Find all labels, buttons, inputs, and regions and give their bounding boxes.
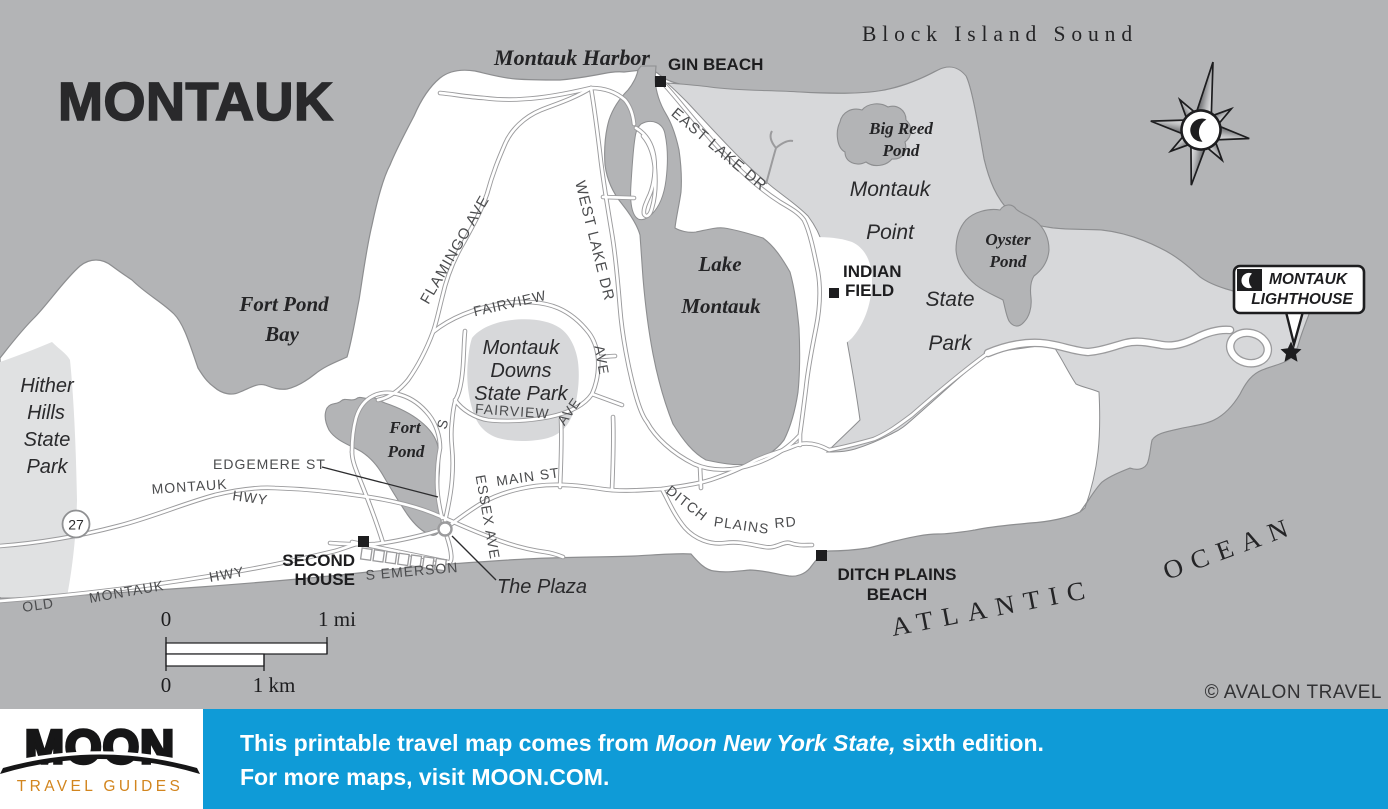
svg-text:MOON: MOON	[25, 720, 175, 773]
svg-text:The Plaza: The Plaza	[497, 576, 587, 598]
svg-text:Montauk: Montauk	[850, 178, 932, 201]
svg-text:FIELD: FIELD	[845, 281, 894, 300]
svg-text:SECOND: SECOND	[282, 551, 355, 570]
svg-text:BEACH: BEACH	[867, 585, 927, 604]
svg-text:Pond: Pond	[882, 141, 920, 160]
svg-text:0: 0	[161, 673, 172, 697]
svg-text:Montauk Harbor: Montauk Harbor	[493, 45, 650, 70]
svg-text:Block Island Sound: Block Island Sound	[862, 21, 1138, 46]
svg-text:HOUSE: HOUSE	[295, 570, 355, 589]
svg-text:Pond: Pond	[989, 252, 1027, 271]
svg-text:INDIAN: INDIAN	[843, 262, 902, 281]
svg-text:TRAVEL GUIDES: TRAVEL GUIDES	[17, 778, 184, 795]
svg-text:Oyster: Oyster	[985, 230, 1031, 249]
svg-text:Hither: Hither	[20, 375, 75, 397]
svg-text:MONTAUK: MONTAUK	[1269, 271, 1349, 288]
svg-text:© AVALON TRAVEL: © AVALON TRAVEL	[1205, 682, 1382, 703]
svg-text:Montauk: Montauk	[680, 294, 761, 318]
svg-text:1 mi: 1 mi	[318, 607, 356, 631]
svg-text:Fort Pond: Fort Pond	[238, 292, 329, 316]
svg-text:Big Reed: Big Reed	[868, 119, 933, 138]
svg-text:State: State	[24, 429, 71, 451]
svg-text:Montauk: Montauk	[483, 337, 561, 359]
svg-text:For more maps, visit MOON.COM.: For more maps, visit MOON.COM.	[240, 764, 609, 790]
svg-text:0: 0	[161, 607, 172, 631]
svg-text:RD: RD	[774, 513, 798, 531]
svg-text:EDGEMERE ST: EDGEMERE ST	[213, 456, 326, 472]
svg-text:Lake: Lake	[697, 252, 741, 276]
svg-text:Point: Point	[866, 221, 915, 244]
svg-text:Bay: Bay	[264, 322, 300, 346]
svg-text:1 km: 1 km	[253, 673, 296, 697]
svg-text:Fort: Fort	[388, 418, 421, 437]
svg-text:Downs: Downs	[490, 360, 551, 382]
svg-text:Park: Park	[26, 456, 68, 478]
svg-text:DITCH PLAINS: DITCH PLAINS	[838, 565, 957, 584]
svg-text:Park: Park	[928, 332, 973, 355]
svg-text:This printable travel map come: This printable travel map comes from Moo…	[240, 730, 1044, 756]
svg-text:Pond: Pond	[387, 442, 425, 461]
svg-text:MONTAUK: MONTAUK	[58, 72, 333, 132]
svg-text:GIN BEACH: GIN BEACH	[668, 55, 763, 74]
svg-text:State: State	[925, 288, 974, 311]
svg-text:Hills: Hills	[27, 402, 65, 424]
svg-text:LIGHTHOUSE: LIGHTHOUSE	[1251, 291, 1353, 308]
svg-text:27: 27	[68, 517, 84, 533]
